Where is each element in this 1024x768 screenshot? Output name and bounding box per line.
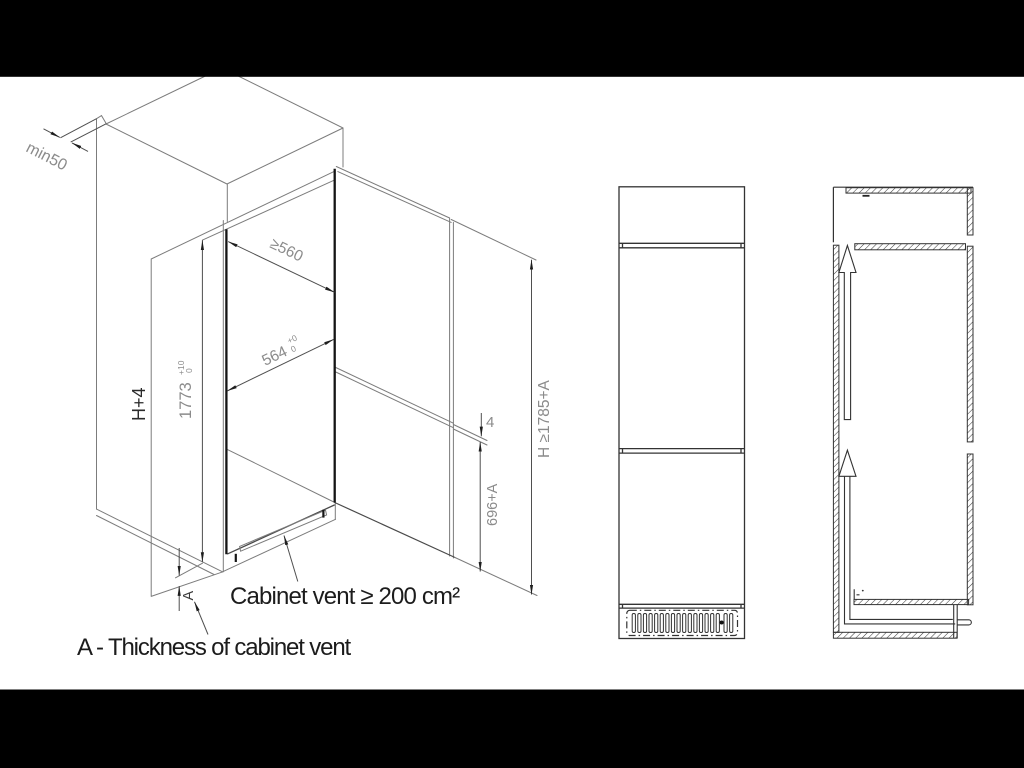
- svg-text:Cabinet vent ≥ 200 cm²: Cabinet vent ≥ 200 cm²: [230, 583, 460, 610]
- svg-text:4: 4: [486, 414, 494, 431]
- svg-text:0: 0: [184, 368, 194, 373]
- svg-text:H+4: H+4: [129, 387, 149, 421]
- svg-text:696+A: 696+A: [485, 483, 501, 526]
- svg-text:H ≥1785+A: H ≥1785+A: [536, 379, 553, 458]
- svg-text:A - Thickness of cabinet vent: A - Thickness of cabinet vent: [77, 634, 352, 661]
- svg-text:A: A: [181, 591, 197, 601]
- svg-text:1773: 1773: [177, 382, 195, 419]
